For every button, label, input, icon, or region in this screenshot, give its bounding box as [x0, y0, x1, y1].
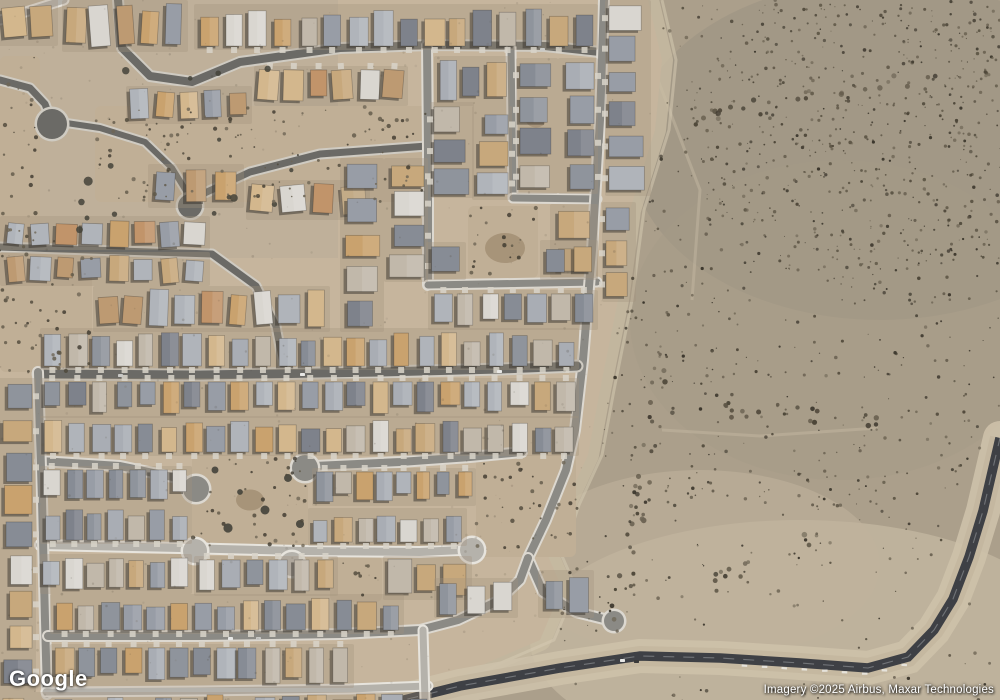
vehicle: [497, 370, 502, 373]
map-viewport[interactable]: Google Imagery ©2025 Airbus, Maxar Techn…: [0, 0, 1000, 700]
house: [3, 222, 24, 247]
house: [204, 695, 223, 700]
house: [437, 60, 457, 102]
house: [131, 221, 155, 245]
house: [152, 91, 175, 120]
house: [354, 602, 376, 637]
house: [552, 427, 573, 459]
house: [530, 340, 552, 373]
vehicle: [620, 659, 625, 662]
house: [89, 424, 111, 459]
house: [571, 247, 592, 274]
house: [78, 223, 103, 247]
house: [513, 166, 549, 190]
house: [53, 257, 73, 281]
house: [179, 334, 201, 373]
house: [412, 423, 435, 459]
house: [152, 172, 176, 204]
house: [513, 128, 551, 156]
house: [126, 561, 144, 590]
house: [277, 184, 307, 215]
house: [146, 289, 169, 329]
house: [62, 7, 87, 45]
house: [346, 17, 368, 53]
house: [602, 102, 635, 128]
house: [602, 72, 635, 94]
house: [470, 10, 492, 53]
house: [250, 291, 273, 328]
house: [171, 295, 195, 326]
house: [158, 258, 180, 287]
house: [371, 11, 394, 53]
house: [98, 602, 120, 637]
house: [106, 559, 124, 590]
google-logo[interactable]: Google: [9, 666, 88, 692]
house: [183, 170, 206, 204]
house: [137, 11, 159, 47]
house: [385, 559, 412, 595]
house: [119, 295, 143, 327]
house: [602, 136, 643, 159]
house: [305, 290, 325, 329]
house: [26, 256, 51, 283]
house: [203, 426, 225, 459]
house: [120, 605, 141, 637]
house: [180, 222, 206, 248]
house: [602, 166, 644, 192]
house: [343, 426, 365, 459]
house: [602, 36, 635, 64]
house: [84, 563, 105, 590]
vehicle: [300, 373, 305, 376]
house: [599, 208, 629, 233]
house: [566, 578, 588, 615]
vehicle: [118, 374, 123, 377]
house: [226, 294, 247, 327]
house: [126, 88, 149, 121]
house: [246, 184, 274, 215]
house: [177, 92, 199, 122]
house: [162, 3, 182, 46]
house: [427, 140, 465, 165]
house: [344, 164, 377, 190]
house: [459, 67, 479, 98]
house: [513, 64, 551, 89]
house: [85, 5, 111, 50]
house: [201, 90, 222, 120]
house: [484, 63, 507, 99]
house: [490, 582, 512, 613]
house: [344, 301, 372, 329]
house: [378, 694, 402, 700]
house: [421, 19, 445, 53]
house: [66, 334, 88, 373]
house: [106, 221, 129, 250]
house: [26, 5, 53, 39]
house: [283, 604, 305, 637]
house: [320, 337, 341, 373]
house: [436, 584, 456, 617]
house: [113, 5, 135, 47]
house: [599, 241, 627, 268]
house: [344, 266, 378, 294]
house: [106, 255, 129, 284]
house: [198, 291, 223, 326]
house: [602, 6, 641, 33]
imagery-attribution: Imagery ©2025 Airbus, Maxar Technologies: [764, 684, 994, 696]
house: [414, 565, 436, 593]
house: [52, 224, 77, 248]
house: [227, 421, 248, 459]
house: [275, 295, 300, 326]
house: [309, 183, 333, 215]
house: [304, 695, 326, 700]
vehicle: [634, 660, 639, 663]
house: [147, 562, 165, 590]
house: [40, 561, 60, 587]
house: [4, 256, 26, 285]
house: [130, 259, 152, 282]
house: [543, 249, 564, 274]
house: [464, 586, 485, 616]
house: [27, 223, 50, 248]
house: [95, 296, 120, 326]
house: [513, 98, 547, 125]
house: [546, 16, 568, 53]
satellite-imagery: [0, 0, 1000, 700]
house: [427, 107, 459, 135]
house: [77, 258, 101, 281]
house: [374, 516, 396, 549]
house: [555, 211, 589, 240]
house: [386, 255, 431, 280]
house: [353, 694, 375, 700]
house: [0, 6, 27, 40]
house: [168, 558, 188, 589]
vehicle: [228, 637, 233, 640]
vehicle: [540, 48, 545, 51]
house: [62, 558, 83, 591]
house: [599, 273, 627, 299]
house: [344, 199, 376, 225]
house: [460, 428, 481, 459]
house: [279, 696, 299, 700]
house: [181, 260, 203, 284]
house: [226, 93, 246, 117]
house: [156, 221, 180, 250]
house: [428, 247, 459, 274]
house: [427, 169, 469, 197]
